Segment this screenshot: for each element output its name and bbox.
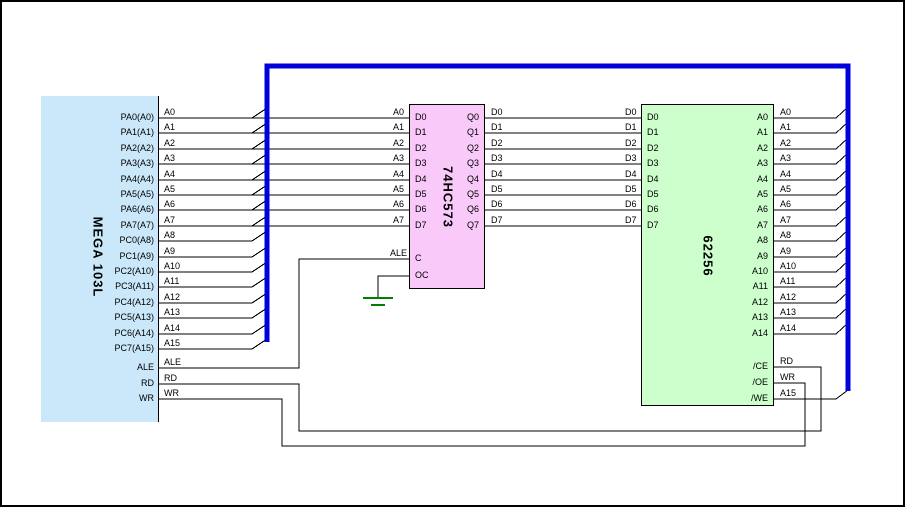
pin-d6: D6 (415, 204, 427, 215)
pin-pa4-a4: PA4(A4) (42, 174, 154, 185)
net-label-d0: D0 (491, 107, 503, 118)
net-label-a12: A12 (164, 292, 180, 303)
pin-a11: A11 (698, 281, 768, 292)
net-label-a10: A10 (164, 261, 180, 272)
net-label-a2: A2 (164, 138, 175, 149)
net-label-a4: A4 (164, 169, 175, 180)
pin-pa7-a7: PA7(A7) (42, 220, 154, 231)
pin-oe: /OE (698, 377, 768, 388)
net-label-ale: ALE (164, 357, 181, 368)
pin-pc0-a8: PC0(A8) (42, 235, 154, 246)
net-label-a11: A11 (164, 276, 179, 287)
pin-pc1-a9: PC1(A9) (42, 251, 154, 262)
ground-stem (378, 276, 409, 298)
pin-c: C (415, 253, 422, 264)
net-label-a10: A10 (780, 261, 796, 272)
net-label-a12: A12 (780, 292, 796, 303)
pin-d5: D5 (415, 189, 427, 200)
pin-q7: Q7 (429, 220, 479, 231)
pin-rd: RD (42, 378, 154, 389)
net-label-d1: D1 (625, 122, 637, 133)
net-label-wr: WR (164, 388, 179, 399)
net-label-a0: A0 (393, 107, 404, 118)
net-label-a6: A6 (780, 199, 791, 210)
net-label-a0: A0 (780, 107, 791, 118)
net-label-d4: D4 (491, 169, 503, 180)
net-label-ale: ALE (390, 248, 407, 259)
net-label-a5: A5 (393, 184, 404, 195)
pin-ce: /CE (698, 361, 768, 372)
pin-q0: Q0 (429, 112, 479, 123)
net-label-a8: A8 (164, 230, 175, 241)
pin-d0: D0 (647, 112, 659, 123)
pin-d5: D5 (647, 189, 659, 200)
net-label-a7: A7 (780, 215, 791, 226)
net-label-a7: A7 (164, 215, 175, 226)
net-label-a11: A11 (780, 276, 795, 287)
net-label-a9: A9 (164, 246, 175, 257)
net-label-a1: A1 (164, 122, 175, 133)
pin-a8: A8 (698, 235, 768, 246)
pin-d6: D6 (647, 204, 659, 215)
net-label-a3: A3 (780, 153, 791, 164)
pin-a9: A9 (698, 251, 768, 262)
net-label-a14: A14 (164, 323, 180, 334)
net-label-d6: D6 (491, 199, 503, 210)
pin-d1: D1 (415, 127, 427, 138)
net-label-a1: A1 (393, 122, 404, 133)
pin-pa0-a0: PA0(A0) (42, 112, 154, 123)
net-label-d6: D6 (625, 199, 637, 210)
net-label-d2: D2 (625, 138, 637, 149)
net-label-wr: WR (780, 372, 795, 383)
net-label-a4: A4 (780, 169, 791, 180)
pin-a12: A12 (698, 297, 768, 308)
pin-oc: OC (415, 270, 429, 281)
pin-q3: Q3 (429, 158, 479, 169)
net-label-a9: A9 (780, 246, 791, 257)
pin-wr: WR (42, 393, 154, 404)
net-label-d5: D5 (491, 184, 503, 195)
pin-pa2-a2: PA2(A2) (42, 143, 154, 154)
pin-d0: D0 (415, 112, 427, 123)
net-label-a2: A2 (393, 138, 404, 149)
pin-d2: D2 (647, 143, 659, 154)
pin-q2: Q2 (429, 143, 479, 154)
net-label-d4: D4 (625, 169, 637, 180)
pin-a14: A14 (698, 328, 768, 339)
pin-a10: A10 (698, 266, 768, 277)
net-label-d3: D3 (491, 153, 503, 164)
net-label-a1: A1 (780, 122, 791, 133)
net-label-d1: D1 (491, 122, 503, 133)
pin-q4: Q4 (429, 174, 479, 185)
net-label-a2: A2 (780, 138, 791, 149)
net-label-a4: A4 (393, 169, 404, 180)
net-label-d5: D5 (625, 184, 637, 195)
pin-a13: A13 (698, 312, 768, 323)
net-label-a13: A13 (164, 307, 180, 318)
net-label-a5: A5 (164, 184, 175, 195)
net-label-a7: A7 (393, 215, 404, 226)
pin-q1: Q1 (429, 127, 479, 138)
net-label-a8: A8 (780, 230, 791, 241)
schematic-canvas: MEGA 103L 74HC573 62256 PA0(A0)PA1(A1)PA… (0, 0, 905, 507)
pin-pa5-a5: PA5(A5) (42, 189, 154, 200)
pin-d7: D7 (647, 220, 659, 231)
pin-d3: D3 (647, 158, 659, 169)
pin-a5: A5 (698, 189, 768, 200)
net-label-a5: A5 (780, 184, 791, 195)
pin-pc7-a15: PC7(A15) (42, 343, 154, 354)
net-label-a15: A15 (780, 388, 796, 399)
pin-pa1-a1: PA1(A1) (42, 127, 154, 138)
net-label-rd: RD (780, 356, 793, 367)
pin-a4: A4 (698, 174, 768, 185)
pin-we: /WE (698, 393, 768, 404)
pin-d7: D7 (415, 220, 427, 231)
pin-ale: ALE (42, 362, 154, 373)
net-label-a0: A0 (164, 107, 175, 118)
pin-d2: D2 (415, 143, 427, 154)
pin-a2: A2 (698, 143, 768, 154)
pin-pc2-a10: PC2(A10) (42, 266, 154, 277)
pin-d4: D4 (415, 174, 427, 185)
pin-pc3-a11: PC3(A11) (42, 281, 154, 292)
pin-a0: A0 (698, 112, 768, 123)
pin-a1: A1 (698, 127, 768, 138)
pin-q5: Q5 (429, 189, 479, 200)
ground-icon (363, 298, 393, 305)
pin-pc5-a13: PC5(A13) (42, 312, 154, 323)
pin-pc4-a12: PC4(A12) (42, 297, 154, 308)
pin-pa3-a3: PA3(A3) (42, 158, 154, 169)
net-label-d7: D7 (491, 215, 503, 226)
net-label-a3: A3 (393, 153, 404, 164)
net-label-a3: A3 (164, 153, 175, 164)
pin-a6: A6 (698, 204, 768, 215)
pin-a3: A3 (698, 158, 768, 169)
pin-q6: Q6 (429, 204, 479, 215)
pin-d1: D1 (647, 127, 659, 138)
net-label-a6: A6 (393, 199, 404, 210)
net-label-a14: A14 (780, 323, 796, 334)
net-label-a6: A6 (164, 199, 175, 210)
net-label-rd: RD (164, 373, 177, 384)
pin-d3: D3 (415, 158, 427, 169)
net-label-d0: D0 (625, 107, 637, 118)
pin-pa6-a6: PA6(A6) (42, 204, 154, 215)
net-label-d7: D7 (625, 215, 637, 226)
net-label-d3: D3 (625, 153, 637, 164)
net-label-a15: A15 (164, 338, 180, 349)
pin-d4: D4 (647, 174, 659, 185)
pin-pc6-a14: PC6(A14) (42, 328, 154, 339)
net-label-d2: D2 (491, 138, 503, 149)
pin-a7: A7 (698, 220, 768, 231)
net-label-a13: A13 (780, 307, 796, 318)
